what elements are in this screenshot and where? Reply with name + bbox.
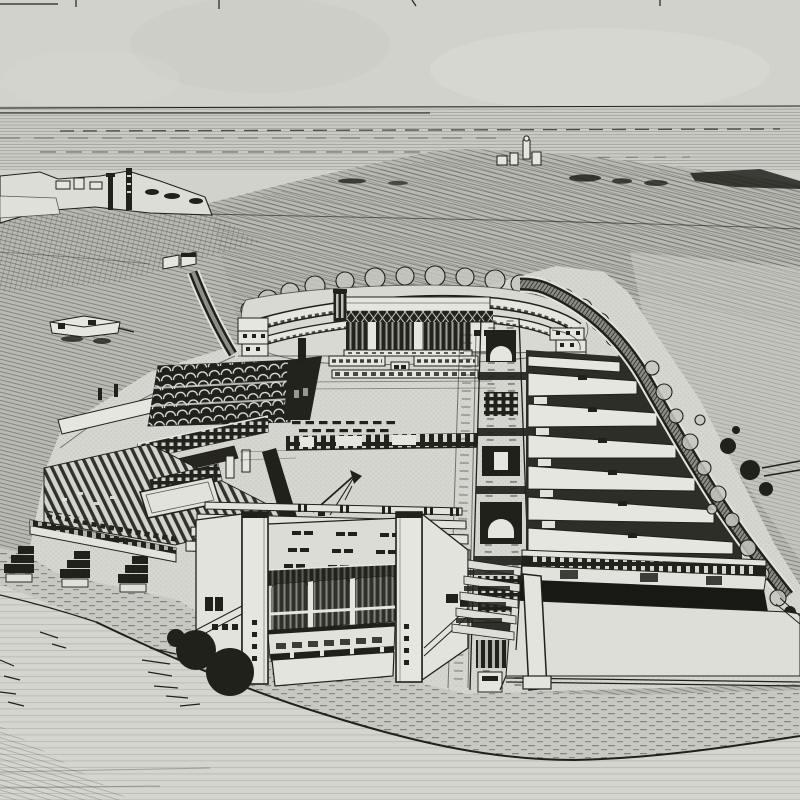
lighthouse-tower: [523, 140, 530, 159]
sky: [0, 0, 800, 120]
barrel-vault-sheds: [148, 360, 298, 426]
right-pylon: [396, 512, 422, 682]
glazed-facade: [266, 564, 400, 686]
loading-apron: [506, 600, 800, 676]
stadium-main-building: [333, 289, 494, 356]
rendering-canvas: [0, 0, 800, 800]
stadium-left-end: [238, 318, 268, 356]
roof-stack: [226, 456, 234, 478]
roof-stack: [242, 450, 250, 472]
scanned-drawing-page: [0, 0, 800, 800]
architectural-rendering: [0, 0, 800, 800]
